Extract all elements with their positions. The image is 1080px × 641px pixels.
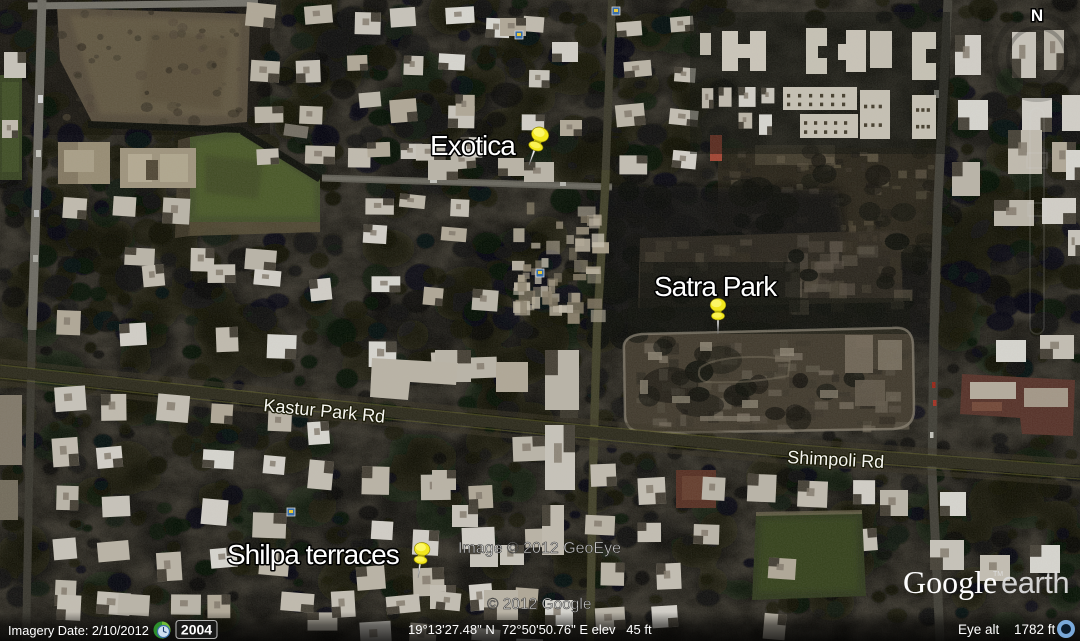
svg-text:Satra Park: Satra Park (654, 271, 778, 302)
svg-text:Imagery Date: 2/10/2012: Imagery Date: 2/10/2012 (8, 623, 149, 638)
svg-text:Exotica: Exotica (430, 130, 516, 161)
svg-text:© 2012 Google: © 2012 Google (487, 596, 592, 613)
svg-text:Google: Google (903, 564, 997, 600)
svg-text:Image © 2012 GeoEye: Image © 2012 GeoEye (458, 540, 621, 557)
svg-text:Shilpa terraces: Shilpa terraces (227, 539, 399, 570)
svg-text:earth: earth (1001, 565, 1069, 600)
svg-text:N: N (1031, 6, 1043, 25)
svg-text:Eye alt: Eye alt (958, 622, 1000, 637)
svg-text:2004: 2004 (181, 622, 212, 638)
svg-text:1782 ft: 1782 ft (1014, 622, 1056, 637)
svg-text:19°13'27.48" N 72°50'50.76" E: 19°13'27.48" N 72°50'50.76" E elev 45 ft (408, 622, 652, 637)
